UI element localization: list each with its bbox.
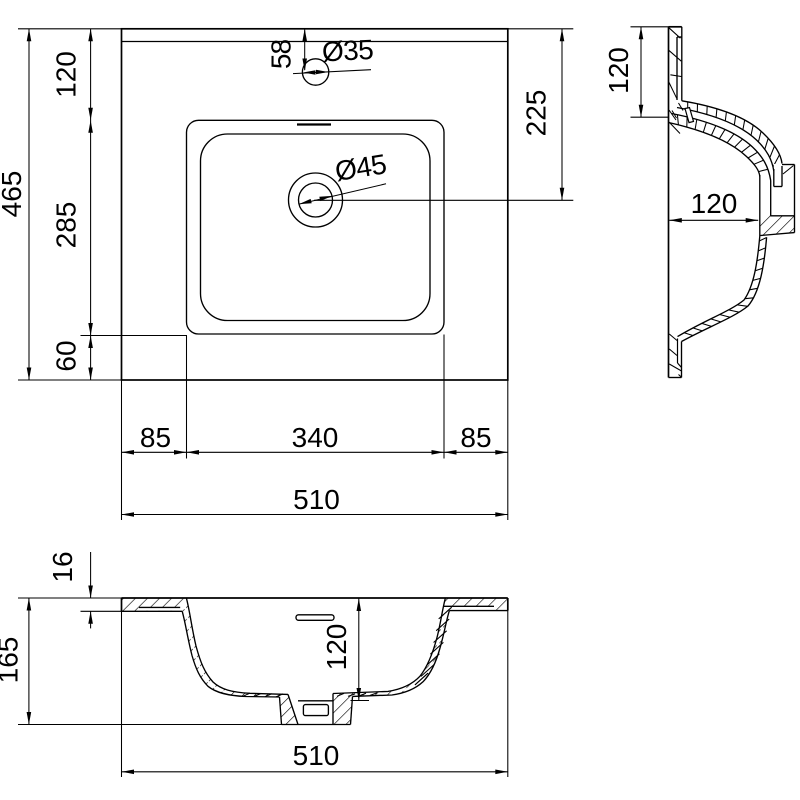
svg-text:510: 510 <box>293 484 340 515</box>
svg-text:120: 120 <box>321 624 352 671</box>
svg-text:85: 85 <box>460 422 491 453</box>
svg-text:58: 58 <box>266 40 297 70</box>
svg-text:340: 340 <box>292 422 339 453</box>
svg-text:120: 120 <box>691 188 738 219</box>
svg-text:Ø35: Ø35 <box>321 34 374 68</box>
svg-text:85: 85 <box>140 422 171 453</box>
svg-text:60: 60 <box>51 340 82 371</box>
svg-text:120: 120 <box>603 47 634 94</box>
svg-text:120: 120 <box>51 51 82 98</box>
svg-text:16: 16 <box>47 551 78 582</box>
svg-text:165: 165 <box>0 637 24 684</box>
svg-text:225: 225 <box>521 90 552 137</box>
svg-text:465: 465 <box>0 171 27 218</box>
svg-text:510: 510 <box>293 740 340 771</box>
svg-text:285: 285 <box>51 202 82 249</box>
